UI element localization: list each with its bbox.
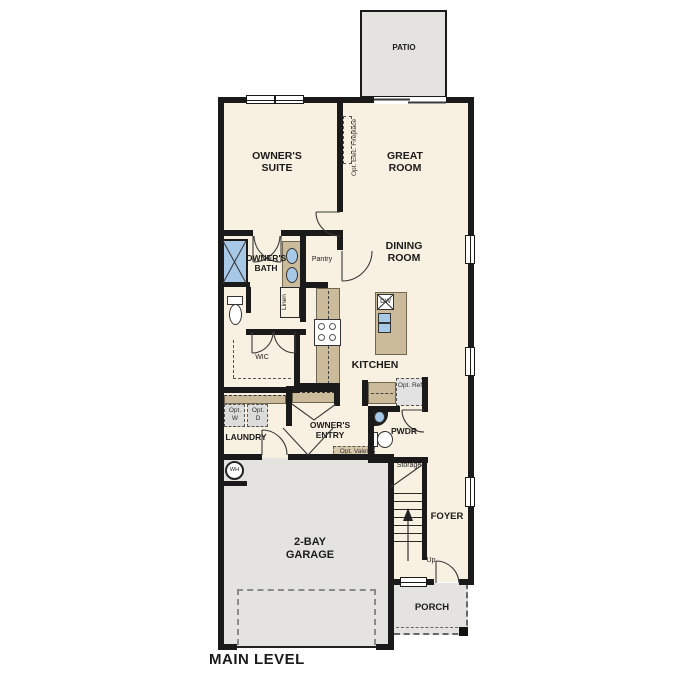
wall [221, 481, 247, 486]
powder-label: PWDR [383, 426, 425, 436]
staircase [391, 486, 422, 548]
wall [300, 282, 328, 288]
great-room-label: GREAT ROOM [377, 150, 433, 175]
garage-door-sill [237, 646, 376, 648]
wic-label: WIC [240, 354, 284, 362]
wall [337, 97, 343, 212]
porch-post [459, 627, 468, 636]
entry-closet-shelf [292, 392, 335, 403]
window-icon [275, 95, 304, 104]
owners-bath-label: OWNER'S BATH [234, 253, 298, 273]
patio-area [360, 10, 447, 98]
owners-entry-label: OWNER'S ENTRY [300, 420, 360, 440]
wall [362, 380, 368, 406]
owners-suite-label: OWNER'S SUITE [242, 150, 312, 175]
window-icon [465, 235, 475, 264]
wic-shelf-dashed [233, 340, 234, 378]
foyer-label: FOYER [426, 511, 468, 522]
wall [300, 236, 306, 322]
wall [388, 454, 394, 650]
wall [281, 230, 343, 236]
wall [218, 644, 237, 650]
floor-plan: Linen DW WH [0, 0, 687, 687]
laundry-counter [224, 395, 286, 404]
wall [246, 287, 251, 313]
water-heater-label: WH [227, 463, 242, 478]
linen-label: Linen [281, 288, 299, 317]
dining-room-label: DINING ROOM [374, 240, 434, 265]
bath-toilet-icon [229, 304, 242, 325]
porch-label: PORCH [405, 602, 459, 613]
opt-dryer-label: Opt. D [249, 407, 267, 422]
wall [334, 386, 340, 406]
wall [368, 406, 400, 412]
island-sink-icon [378, 313, 391, 323]
opt-fireplace-label: Opt. Elec. Fireplace [351, 104, 361, 190]
wall [286, 386, 292, 426]
window-icon [400, 577, 427, 587]
linen-closet: Linen [280, 287, 300, 318]
powder-sink-bowl-icon [374, 411, 385, 423]
wall [337, 236, 343, 250]
up-label: Up [423, 557, 439, 565]
wall [459, 579, 474, 585]
laundry-label: LAUNDRY [216, 432, 276, 442]
pantry-label: Pantry [304, 256, 340, 264]
porch-edge-dashed [396, 627, 458, 628]
wall [223, 230, 253, 236]
patio-label: PATIO [362, 43, 446, 52]
plan-title: MAIN LEVEL [209, 651, 369, 669]
garage-label: 2-BAY GARAGE [278, 536, 342, 562]
dishwasher-label: DW [377, 298, 394, 306]
ref-counter [368, 382, 396, 404]
wic-shelf-dashed [233, 378, 291, 379]
stove-icon [314, 319, 341, 346]
wall [468, 97, 474, 585]
window-icon [246, 95, 275, 104]
opt-washer-label: Opt. W [226, 407, 244, 422]
wall [218, 97, 224, 650]
kitchen-label: KITCHEN [345, 359, 405, 371]
window-icon [465, 477, 475, 507]
sliding-door-icon [374, 97, 446, 104]
storage-label: Storage [391, 462, 427, 470]
garage-door-outline [237, 589, 376, 645]
opt-ref-label: Opt. Ref [397, 382, 423, 390]
window-icon [465, 347, 475, 376]
wall [218, 454, 262, 460]
opt-valet-label: Opt. Valet [333, 448, 375, 456]
wall [286, 386, 340, 392]
water-heater-icon: WH [225, 461, 244, 480]
island-sink-icon [378, 323, 391, 333]
